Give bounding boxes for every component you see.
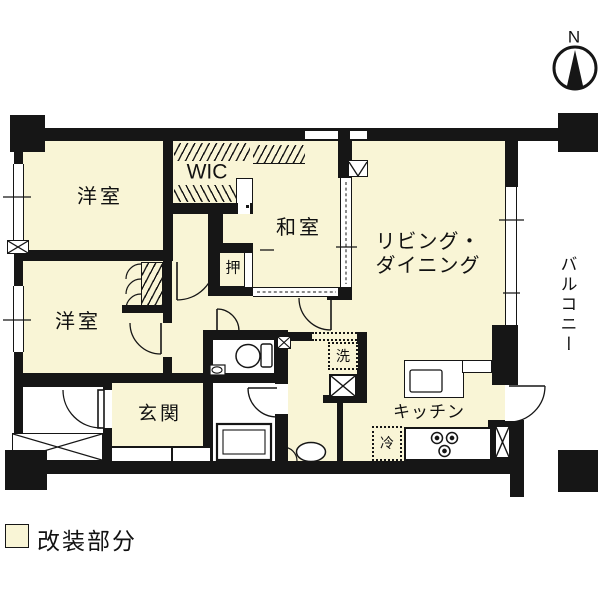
window-bedroom1 <box>13 164 24 246</box>
front-door-gap <box>103 390 112 428</box>
pipe-space-box <box>329 374 357 398</box>
wic-door-pivot-dot <box>246 205 249 208</box>
wall-genkan-top <box>112 373 203 383</box>
wall-right-upper <box>505 141 518 187</box>
bath-door-gap <box>275 384 288 414</box>
window-bedroom2 <box>13 286 24 352</box>
room-label-kitchen: キッチン <box>393 404 465 421</box>
compass-north-label: N <box>568 29 580 46</box>
room-label-living-line1: リビング・ <box>376 232 481 252</box>
room-label-bedroom2: 洋室 <box>55 312 101 332</box>
label-washer: 洗 <box>336 349 350 363</box>
kitchen-island-counter-ext <box>462 360 492 373</box>
wall-bedroom-divider <box>14 250 172 261</box>
kitchen-island-counter <box>404 360 464 398</box>
entrance-step <box>112 446 210 461</box>
wall-right-mid <box>492 325 518 385</box>
pillar-bottom-right <box>558 450 598 492</box>
room-label-genkan: 玄関 <box>138 405 182 424</box>
label-fridge: 冷 <box>380 436 394 450</box>
room-label-wic: WIC <box>187 162 228 183</box>
kitchen-stove-counter <box>404 427 492 461</box>
room-label-oshiire: 押 <box>225 261 240 276</box>
compass-icon <box>554 47 596 89</box>
room-label-living-line2: ダイニング <box>376 256 481 276</box>
wall-washroom-right <box>357 332 367 403</box>
window-living-balcony <box>505 187 517 325</box>
washroom-sliding-door <box>312 332 357 341</box>
living-hatch-box <box>348 160 368 177</box>
bathroom-floor <box>213 383 275 461</box>
fusuma-oshiire <box>244 253 253 287</box>
toilet-room-floor <box>213 340 275 373</box>
pillar-top-left <box>10 115 45 152</box>
toilet-vent-box <box>277 336 291 349</box>
bedroom2-closet-hatch <box>141 262 163 309</box>
japanese-room-closet-hatch <box>253 145 305 164</box>
wall-bedroom2-right-lower <box>163 357 172 383</box>
legend-swatch <box>5 524 29 548</box>
wall-below-wic <box>208 214 223 246</box>
pillar-bottom-left <box>5 450 47 490</box>
wic-pillar <box>236 178 253 204</box>
floor-plan: 洋室 WIC 和室 押 リビング・ ダイニング 洋室 玄関 キッチン 洗 冷 バ… <box>0 0 600 599</box>
wall-oshiire-top <box>208 243 253 253</box>
fusuma-washitsu-corridor <box>253 287 338 297</box>
left-wall-shutter-box <box>7 240 29 254</box>
wall-toilet-top <box>203 330 275 340</box>
room-label-balcony: バルコニー <box>559 255 576 355</box>
pillar-top-right <box>558 113 598 152</box>
legend-label: 改装部分 <box>37 522 137 556</box>
wall-bottom <box>14 461 510 474</box>
wall-top <box>40 128 560 141</box>
wall-bottom-right-step <box>510 461 524 497</box>
fusuma-washitsu-living <box>340 178 352 287</box>
room-label-bedroom1: 洋室 <box>77 187 123 207</box>
wall-bath-top <box>203 373 288 383</box>
room-label-washitsu: 和室 <box>276 218 322 238</box>
wall-bedroom2-bottom <box>14 373 112 387</box>
kitchen-shaft-box <box>494 425 511 459</box>
wall-washroom-kitchen-partition <box>337 403 343 461</box>
wall-bedroom2-right-upper <box>163 261 172 323</box>
wall-bedroom1-right <box>163 141 173 261</box>
wall-oshiire-bottom <box>208 286 253 296</box>
balcony-door-gap <box>505 385 519 421</box>
wall-closet2-bottom-stub <box>122 305 167 313</box>
window-top-living <box>350 130 367 140</box>
entrance-step-divider <box>171 446 173 461</box>
window-top-washitsu <box>305 130 338 140</box>
wic-shelf-hatch-top <box>174 143 250 161</box>
